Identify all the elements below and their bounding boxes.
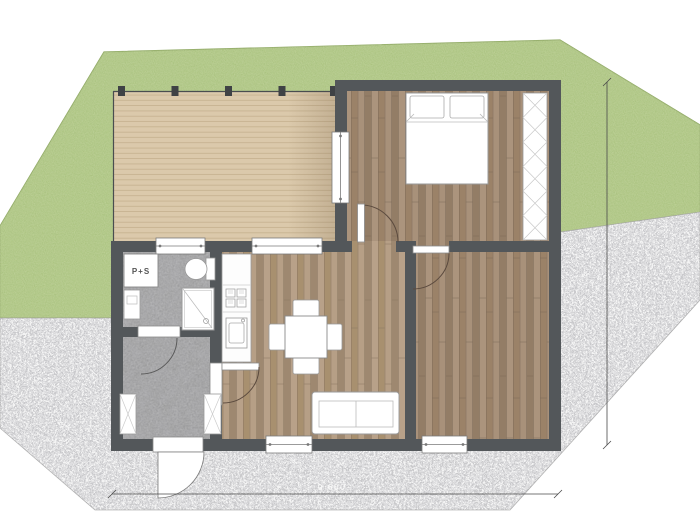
window-living (266, 436, 312, 453)
pillow-right (450, 96, 484, 118)
chair-left (269, 324, 286, 350)
window-deck-bedroom (332, 132, 349, 203)
toilet (185, 258, 215, 280)
kitchen-counter (222, 254, 251, 362)
chair-top (293, 300, 319, 317)
dimension-label-bottom: 9 600 (318, 482, 347, 492)
window-kitchen (252, 238, 322, 254)
bathroom-vanity (124, 290, 140, 319)
sofa (312, 392, 399, 434)
chair-right (325, 324, 342, 350)
wardrobe (523, 93, 547, 240)
chair-bottom (293, 357, 319, 374)
window-bath (156, 238, 205, 254)
washer-unit: P+S (124, 254, 158, 287)
hall-closet-right (204, 394, 221, 434)
window-bedroom-2 (422, 436, 467, 453)
kitchen-sink (226, 318, 247, 348)
deck (113, 86, 338, 241)
bedroom-2-floor (405, 241, 561, 451)
deck-shading (288, 91, 336, 241)
washer-unit-label: P+S (132, 267, 150, 276)
floor-plan-canvas: P+S 9 600 (0, 0, 700, 530)
shower (182, 288, 214, 330)
pillow-left (410, 96, 444, 118)
double-bed (406, 93, 488, 184)
hall-closet-left (120, 394, 136, 434)
floor-plan-page: P+S 9 600 (0, 0, 700, 530)
dining-table (285, 316, 327, 358)
